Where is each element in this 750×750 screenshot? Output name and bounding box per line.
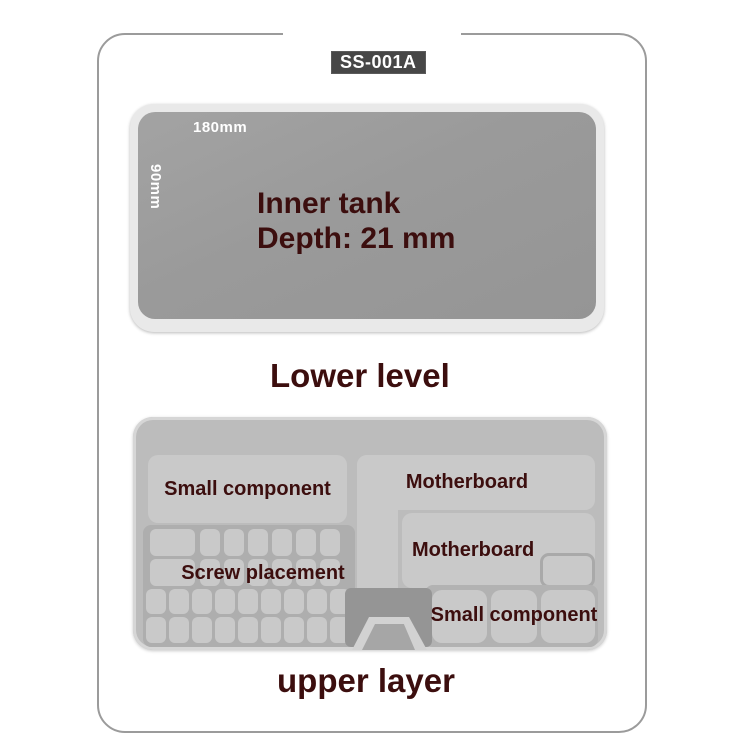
screw-cell — [296, 529, 316, 556]
screw-cell — [146, 589, 166, 614]
screw-cell — [320, 529, 340, 556]
upper-layer-caption: upper layer — [277, 662, 455, 700]
small-inset-cell — [540, 553, 595, 588]
screw-cell — [215, 589, 235, 614]
inner-tank-surface: 180mm 90mm Inner tank Depth: 21 mm — [138, 112, 596, 319]
screw-cell — [169, 617, 189, 643]
screw-cell — [150, 529, 195, 556]
screw-cell — [169, 589, 189, 614]
motherboard-middle-label-text: Motherboard — [412, 539, 534, 562]
inner-tank: 180mm 90mm Inner tank Depth: 21 mm — [130, 104, 604, 332]
small-component-compartment-left: Small component — [148, 455, 347, 523]
screw-cell — [272, 529, 292, 556]
screw-cell — [284, 617, 304, 643]
screw-cell — [215, 617, 235, 643]
tank-annotation-line1: Inner tank — [257, 186, 455, 221]
small-component-right-label: Small component — [425, 604, 603, 627]
screw-cell — [307, 589, 327, 614]
screw-cell — [307, 617, 327, 643]
motherboard-top-label: Motherboard — [357, 455, 595, 510]
model-badge: SS-001A — [331, 51, 426, 74]
tank-annotation-line2: Depth: 21 mm — [257, 221, 455, 256]
screw-cell — [238, 589, 258, 614]
screw-cell — [261, 617, 281, 643]
small-component-left-label: Small component — [164, 478, 331, 501]
screw-cell — [248, 529, 268, 556]
product-diagram: SS-001A 180mm 90mm Inner tank Depth: 21 … — [0, 0, 750, 750]
screw-cell — [146, 617, 166, 643]
screw-cell — [284, 589, 304, 614]
width-dimension-label: 180mm — [193, 119, 247, 136]
screw-cell — [192, 589, 212, 614]
motherboard-top-label-text: Motherboard — [406, 471, 528, 494]
upper-tray: Small component Screw placement Motherbo… — [133, 417, 607, 650]
screw-cell — [192, 617, 212, 643]
screw-placement-label: Screw placement — [173, 562, 353, 585]
screw-cell — [200, 529, 220, 556]
screw-cell — [224, 529, 244, 556]
lower-level-caption: Lower level — [270, 357, 450, 395]
side-dimension-label: 90mm — [147, 164, 164, 209]
screw-cell — [238, 617, 258, 643]
screw-cell — [261, 589, 281, 614]
frame-top-gap — [283, 25, 461, 41]
tank-annotation: Inner tank Depth: 21 mm — [257, 186, 455, 256]
